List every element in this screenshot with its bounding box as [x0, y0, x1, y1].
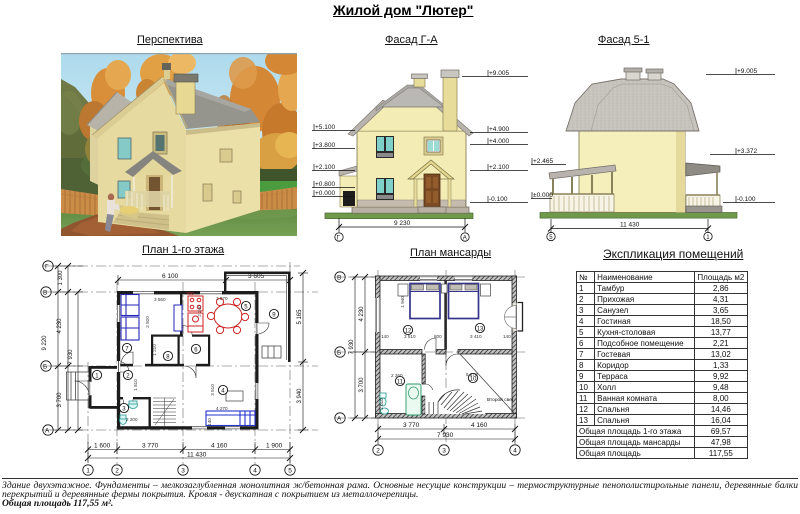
svg-text:1 210: 1 210: [152, 344, 157, 356]
svg-text:1 600: 1 600: [94, 443, 111, 450]
svg-text:3 770: 3 770: [403, 422, 420, 429]
svg-text:3: 3: [442, 448, 446, 455]
svg-text:В: В: [337, 275, 341, 282]
svg-text:11: 11: [397, 379, 404, 385]
svg-text:-0.100: -0.100: [489, 196, 508, 203]
svg-text:7 930: 7 930: [349, 339, 355, 355]
svg-text:5 270: 5 270: [466, 372, 478, 377]
svg-text:4 160: 4 160: [471, 422, 488, 429]
svg-text:1 900: 1 900: [266, 443, 283, 450]
svg-text:3 940: 3 940: [297, 388, 303, 404]
svg-text:13: 13: [477, 326, 484, 332]
svg-text:Г: Г: [337, 236, 341, 242]
svg-text:4 160: 4 160: [211, 443, 228, 450]
svg-text:3 410: 3 410: [470, 334, 482, 339]
svg-text:+3.372: +3.372: [737, 148, 757, 155]
svg-text:2 260: 2 260: [391, 373, 403, 378]
svg-text:1 810: 1 810: [133, 379, 138, 391]
svg-text:2: 2: [376, 448, 380, 455]
svg-text:4 230: 4 230: [359, 306, 365, 322]
svg-text:1 300: 1 300: [58, 270, 64, 286]
svg-text:1 940: 1 940: [400, 296, 405, 308]
svg-text:3 510: 3 510: [210, 384, 215, 396]
svg-text:5: 5: [288, 468, 292, 475]
svg-text:5 165: 5 165: [297, 309, 303, 325]
svg-text:2 200: 2 200: [126, 417, 138, 422]
svg-text:В: В: [43, 290, 47, 297]
svg-text:6 100: 6 100: [162, 273, 179, 280]
svg-text:+9.005: +9.005: [489, 70, 509, 77]
svg-text:2 920: 2 920: [145, 316, 150, 328]
svg-text:3 970: 3 970: [216, 296, 228, 301]
svg-text:-0.100: -0.100: [737, 196, 756, 203]
svg-text:+2.100: +2.100: [489, 164, 509, 171]
svg-text:2 010: 2 010: [379, 398, 384, 410]
svg-text:+2.465: +2.465: [533, 158, 553, 165]
svg-text:Б: Б: [337, 350, 341, 357]
svg-text:+2.100: +2.100: [315, 164, 335, 171]
svg-text:+5.100: +5.100: [315, 124, 335, 131]
svg-text:+3.800: +3.800: [315, 142, 335, 149]
svg-text:140: 140: [207, 418, 212, 426]
svg-text:1: 1: [86, 468, 90, 475]
svg-text:3 560: 3 560: [154, 297, 166, 302]
svg-text:А: А: [45, 428, 50, 435]
svg-text:9 230: 9 230: [394, 220, 411, 227]
svg-text:4 230: 4 230: [57, 318, 63, 334]
svg-text:700: 700: [186, 291, 194, 296]
svg-text:+0.000: +0.000: [315, 190, 335, 197]
svg-text:+9.005: +9.005: [737, 68, 757, 75]
svg-text:2: 2: [115, 468, 119, 475]
svg-text:+0.800: +0.800: [315, 181, 335, 188]
svg-text:4 270: 4 270: [216, 406, 228, 411]
svg-text:+4.000: +4.000: [489, 138, 509, 145]
svg-text:А: А: [463, 236, 467, 242]
svg-text:2 240: 2 240: [197, 305, 202, 317]
svg-text:3: 3: [181, 468, 185, 475]
svg-text:А: А: [337, 416, 342, 423]
svg-text:Второй свет: Второй свет: [487, 396, 515, 403]
svg-text:3 700: 3 700: [359, 377, 365, 393]
svg-text:+4.900: +4.900: [489, 126, 509, 133]
svg-text:3 510: 3 510: [404, 334, 416, 339]
svg-text:7 930: 7 930: [68, 349, 74, 365]
svg-text:Г: Г: [45, 264, 49, 271]
svg-text:140: 140: [381, 334, 389, 339]
svg-text:±0.000: ±0.000: [533, 192, 553, 199]
svg-text:Б: Б: [43, 364, 47, 371]
svg-text:4: 4: [253, 468, 257, 475]
svg-text:11 430: 11 430: [187, 452, 207, 459]
svg-text:9 220: 9 220: [42, 335, 48, 351]
svg-text:7 930: 7 930: [437, 432, 454, 439]
svg-text:4: 4: [513, 448, 517, 455]
svg-text:140: 140: [503, 334, 511, 339]
svg-text:10: 10: [470, 376, 477, 382]
svg-text:800: 800: [434, 334, 442, 339]
svg-text:3 770: 3 770: [142, 443, 159, 450]
svg-text:11 430: 11 430: [620, 222, 640, 229]
svg-text:3 700: 3 700: [57, 392, 63, 408]
